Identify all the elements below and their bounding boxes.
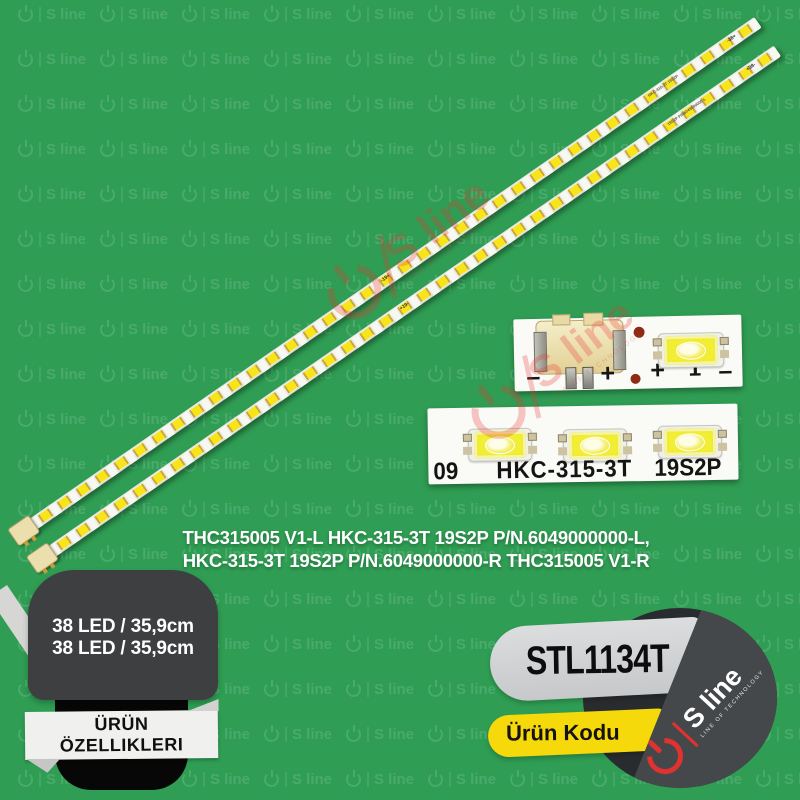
- watermark-tile: S line: [674, 501, 742, 518]
- power-icon: [428, 52, 443, 67]
- watermark-tile: S line: [100, 6, 168, 23]
- watermark-tile: S line: [18, 96, 86, 113]
- divider-bar: [449, 142, 451, 157]
- watermark-tile: S line: [674, 186, 742, 203]
- watermark-brand-text: S line: [784, 501, 800, 518]
- divider-bar: [121, 142, 123, 157]
- divider-bar: [39, 367, 41, 382]
- watermark-tile: S line: [264, 501, 332, 518]
- divider-bar: [39, 142, 41, 157]
- watermark-tile: S line: [756, 141, 800, 158]
- watermark-brand-text: S line: [456, 51, 496, 68]
- power-icon: [182, 232, 197, 247]
- features-ribbon: ÜRÜN ÖZELLIKLERI: [25, 710, 218, 760]
- watermark-tile: S line: [346, 771, 414, 788]
- watermark-brand-text: S line: [620, 186, 660, 203]
- watermark-brand-text: S line: [128, 96, 168, 113]
- watermark-brand-text: S line: [128, 51, 168, 68]
- divider-bar: [285, 97, 287, 112]
- divider-bar: [449, 97, 451, 112]
- power-icon: [346, 727, 361, 742]
- power-icon: [428, 367, 443, 382]
- divider-bar: [777, 187, 779, 202]
- power-icon: [428, 592, 443, 607]
- watermark-brand-text: S line: [46, 276, 86, 293]
- watermark-brand-text: S line: [374, 411, 414, 428]
- watermark-tile: S line: [100, 96, 168, 113]
- power-icon: [756, 97, 771, 112]
- watermark-brand-text: S line: [46, 51, 86, 68]
- divider-bar: [777, 142, 779, 157]
- divider-bar: [39, 772, 41, 787]
- ribbon-line-2: ÖZELLIKLERI: [25, 734, 218, 757]
- watermark-brand-text: S line: [292, 501, 332, 518]
- product-image: S lineS lineS lineS lineS lineS lineS li…: [0, 0, 800, 800]
- watermark-brand-text: S line: [784, 321, 800, 338]
- power-icon: [592, 187, 607, 202]
- watermark-brand-text: S line: [456, 321, 496, 338]
- watermark-tile: S line: [100, 276, 168, 293]
- power-icon: [264, 322, 279, 337]
- divider-bar: [285, 277, 287, 292]
- power-icon: [428, 637, 443, 652]
- divider-bar: [285, 52, 287, 67]
- watermark-tile: S line: [264, 411, 332, 428]
- watermark-brand-text: S line: [456, 681, 496, 698]
- watermark-tile: S line: [18, 231, 86, 248]
- power-icon: [510, 52, 525, 67]
- divider-bar: [285, 502, 287, 517]
- watermark-tile: S line: [346, 726, 414, 743]
- watermark-tile: S line: [428, 636, 496, 653]
- watermark-brand-text: S line: [538, 96, 578, 113]
- led-pad: [718, 430, 727, 438]
- watermark-tile: S line: [264, 231, 332, 248]
- divider-bar: [367, 772, 369, 787]
- power-icon: [346, 682, 361, 697]
- power-icon: [182, 97, 197, 112]
- watermark-tile: S line: [264, 456, 332, 473]
- watermark-brand-text: S line: [210, 501, 250, 518]
- watermark-brand-text: S line: [620, 591, 660, 608]
- watermark-brand-text: S line: [374, 186, 414, 203]
- watermark-tile: S line: [674, 6, 742, 23]
- power-icon: [756, 412, 771, 427]
- power-icon: [18, 277, 33, 292]
- watermark-tile: S line: [428, 51, 496, 68]
- watermark-brand-text: S line: [374, 96, 414, 113]
- watermark-tile: S line: [756, 501, 800, 518]
- watermark-brand-text: S line: [620, 501, 660, 518]
- watermark-tile: S line: [18, 366, 86, 383]
- power-icon: [674, 277, 689, 292]
- divider-bar: [203, 52, 205, 67]
- watermark-tile: S line: [510, 51, 578, 68]
- watermark-tile: S line: [182, 51, 250, 68]
- divider-bar: [285, 412, 287, 427]
- watermark-brand-text: S line: [702, 6, 742, 23]
- watermark-brand-text: S line: [210, 51, 250, 68]
- watermark-brand-text: S line: [292, 636, 332, 653]
- divider-bar: [613, 232, 615, 247]
- watermark-tile: S line: [346, 636, 414, 653]
- watermark-tile: S line: [100, 231, 168, 248]
- divider-bar: [367, 682, 369, 697]
- divider-bar: [367, 142, 369, 157]
- watermark-tile: S line: [428, 681, 496, 698]
- watermark-brand-text: S line: [702, 501, 742, 518]
- watermark-brand-text: S line: [292, 231, 332, 248]
- watermark-tile: S line: [182, 6, 250, 23]
- power-icon: [346, 97, 361, 112]
- solder-dot: [630, 374, 640, 384]
- power-icon: [428, 97, 443, 112]
- divider-bar: [777, 97, 779, 112]
- watermark-brand-text: S line: [374, 366, 414, 383]
- watermark-brand-text: S line: [784, 456, 800, 473]
- power-icon: [346, 187, 361, 202]
- divider-bar: [203, 187, 205, 202]
- divider-bar: [449, 637, 451, 652]
- divider-bar: [39, 457, 41, 472]
- watermark-tile: S line: [182, 141, 250, 158]
- power-icon: [592, 52, 607, 67]
- watermark-tile: S line: [18, 411, 86, 428]
- watermark-tile: S line: [18, 51, 86, 68]
- power-icon: [264, 232, 279, 247]
- power-icon: [428, 772, 443, 787]
- watermark-tile: S line: [674, 141, 742, 158]
- divider-bar: [121, 97, 123, 112]
- watermark-brand-text: S line: [784, 591, 800, 608]
- watermark-brand-text: S line: [784, 411, 800, 428]
- watermark-tile: S line: [100, 366, 168, 383]
- product-code-label-banner: Ürün Kodu: [487, 708, 669, 758]
- watermark-brand-text: S line: [210, 771, 250, 788]
- divider-bar: [449, 502, 451, 517]
- power-icon: [674, 502, 689, 517]
- watermark-brand-text: S line: [46, 321, 86, 338]
- watermark-brand-text: S line: [456, 591, 496, 608]
- watermark-brand-text: S line: [292, 96, 332, 113]
- divider-bar: [203, 367, 205, 382]
- divider-bar: [531, 142, 533, 157]
- watermark-brand-text: S line: [46, 141, 86, 158]
- divider-bar: [367, 7, 369, 22]
- divider-bar: [285, 682, 287, 697]
- divider-bar: [695, 232, 697, 247]
- power-icon: [264, 52, 279, 67]
- watermark-brand-text: S line: [210, 186, 250, 203]
- watermark-tile: S line: [264, 186, 332, 203]
- power-icon: [182, 772, 197, 787]
- watermark-brand-text: S line: [210, 231, 250, 248]
- watermark-brand-text: S line: [702, 276, 742, 293]
- power-icon: [756, 142, 771, 157]
- watermark-brand-text: S line: [128, 141, 168, 158]
- power-icon: [264, 97, 279, 112]
- watermark-brand-text: S line: [46, 231, 86, 248]
- watermark-brand-text: S line: [620, 51, 660, 68]
- power-icon: [100, 52, 115, 67]
- power-icon: [100, 412, 115, 427]
- power-icon: [428, 502, 443, 517]
- watermark-brand-text: S line: [374, 51, 414, 68]
- watermark-brand-text: S line: [292, 771, 332, 788]
- divider-bar: [777, 592, 779, 607]
- power-icon: [428, 682, 443, 697]
- watermark-brand-text: S line: [292, 186, 332, 203]
- watermark-tile: S line: [100, 321, 168, 338]
- power-icon: [756, 367, 771, 382]
- divider-bar: [203, 232, 205, 247]
- watermark-tile: S line: [18, 276, 86, 293]
- divider-bar: [203, 457, 205, 472]
- description-line-1: THC315005 V1-L HKC-315-3T 19S2P P/N.6049…: [16, 527, 800, 550]
- power-icon: [756, 7, 771, 22]
- power-icon: [18, 142, 33, 157]
- product-code: STL1134T: [526, 638, 670, 680]
- watermark-tile: S line: [182, 771, 250, 788]
- divider-bar: [695, 277, 697, 292]
- power-icon: [18, 97, 33, 112]
- divider-bar: [203, 142, 205, 157]
- divider-bar: [531, 277, 533, 292]
- watermark-tile: S line: [264, 6, 332, 23]
- power-icon: [264, 277, 279, 292]
- watermark-brand-text: S line: [702, 141, 742, 158]
- divider-bar: [613, 52, 615, 67]
- power-icon: [756, 772, 771, 787]
- watermark-brand-text: S line: [46, 186, 86, 203]
- divider-bar: [449, 682, 451, 697]
- power-icon: [428, 322, 443, 337]
- power-icon: [346, 7, 361, 22]
- divider-bar: [777, 727, 779, 742]
- pcb-print-model: HKC-315-3T: [496, 457, 632, 483]
- watermark-brand-text: S line: [128, 186, 168, 203]
- divider-bar: [613, 187, 615, 202]
- watermark-brand-text: S line: [538, 591, 578, 608]
- watermark-brand-text: S line: [128, 321, 168, 338]
- divider-bar: [367, 97, 369, 112]
- watermark-brand-text: S line: [784, 366, 800, 383]
- divider-bar: [777, 232, 779, 247]
- watermark-brand-text: S line: [456, 141, 496, 158]
- watermark-tile: S line: [346, 501, 414, 518]
- power-icon: [18, 367, 33, 382]
- divider-bar: [121, 322, 123, 337]
- power-icon: [18, 52, 33, 67]
- watermark-tile: S line: [756, 321, 800, 338]
- power-icon: [346, 52, 361, 67]
- watermark-brand-text: S line: [374, 6, 414, 23]
- power-icon: [756, 187, 771, 202]
- led-pad: [653, 431, 662, 439]
- power-icon: [182, 322, 197, 337]
- divider-bar: [695, 142, 697, 157]
- divider-bar: [613, 772, 615, 787]
- power-icon: [100, 97, 115, 112]
- power-icon: [674, 232, 689, 247]
- watermark-brand-text: S line: [538, 6, 578, 23]
- watermark-brand-text: S line: [292, 726, 332, 743]
- power-icon: [18, 457, 33, 472]
- divider-bar: [285, 7, 287, 22]
- feature-line-1: 38 LED / 35,9cm: [28, 616, 218, 638]
- watermark-brand-text: S line: [784, 231, 800, 248]
- divider-bar: [777, 367, 779, 382]
- divider-bar: [285, 142, 287, 157]
- divider-bar: [449, 52, 451, 67]
- watermark-tile: S line: [264, 591, 332, 608]
- watermark-brand-text: S line: [46, 456, 86, 473]
- watermark-tile: S line: [264, 636, 332, 653]
- pcb-print-date: 09: [433, 460, 458, 484]
- power-icon: [264, 772, 279, 787]
- watermark-tile: S line: [182, 321, 250, 338]
- divider-bar: [39, 52, 41, 67]
- watermark-brand-text: S line: [46, 411, 86, 428]
- power-icon: [100, 322, 115, 337]
- divider-bar: [285, 727, 287, 742]
- watermark-tile: S line: [756, 231, 800, 248]
- divider-bar: [203, 97, 205, 112]
- watermark-brand-text: S line: [784, 96, 800, 113]
- power-icon: [264, 7, 279, 22]
- watermark-tile: S line: [592, 231, 660, 248]
- power-icon: [100, 187, 115, 202]
- product-description: THC315005 V1-L HKC-315-3T 19S2P P/N.6049…: [16, 527, 800, 572]
- led-pad: [528, 433, 537, 441]
- divider-bar: [285, 637, 287, 652]
- watermark-tile: S line: [428, 321, 496, 338]
- watermark-brand-text: S line: [374, 681, 414, 698]
- power-icon: [100, 7, 115, 22]
- watermark-tile: S line: [346, 411, 414, 428]
- power-icon: [592, 772, 607, 787]
- led-pad: [558, 434, 567, 442]
- watermark-tile: S line: [346, 141, 414, 158]
- watermark-brand-text: S line: [292, 456, 332, 473]
- watermark-tile: S line: [264, 726, 332, 743]
- product-code-label: Ürün Kodu: [506, 721, 650, 744]
- divider-bar: [203, 322, 205, 337]
- watermark-tile: S line: [674, 276, 742, 293]
- power-icon: [428, 7, 443, 22]
- watermark-tile: S line: [182, 231, 250, 248]
- ribbon-line-1: ÜRÜN: [25, 713, 218, 736]
- watermark-brand-text: S line: [456, 6, 496, 23]
- power-icon: [264, 187, 279, 202]
- power-icon: [756, 502, 771, 517]
- power-icon: [346, 142, 361, 157]
- divider-bar: [285, 322, 287, 337]
- power-icon: [592, 97, 607, 112]
- divider-bar: [367, 412, 369, 427]
- watermark-tile: S line: [182, 96, 250, 113]
- power-icon: [756, 592, 771, 607]
- divider-bar: [531, 502, 533, 517]
- power-icon: [592, 7, 607, 22]
- power-icon: [592, 502, 607, 517]
- power-icon: [182, 187, 197, 202]
- power-icon: [346, 772, 361, 787]
- power-icon: [346, 457, 361, 472]
- watermark-tile: S line: [756, 6, 800, 23]
- watermark-tile: S line: [100, 186, 168, 203]
- divider-bar: [449, 322, 451, 337]
- watermark-brand-text: S line: [538, 231, 578, 248]
- divider-bar: [449, 367, 451, 382]
- watermark-brand-text: S line: [456, 501, 496, 518]
- watermark-brand-text: S line: [374, 726, 414, 743]
- power-icon: [756, 457, 771, 472]
- divider-bar: [203, 772, 205, 787]
- divider-bar: [367, 457, 369, 472]
- watermark-tile: S line: [346, 6, 414, 23]
- watermark-brand-text: S line: [210, 321, 250, 338]
- power-icon: [346, 232, 361, 247]
- divider-bar: [121, 277, 123, 292]
- watermark-tile: S line: [592, 591, 660, 608]
- power-icon: [510, 277, 525, 292]
- divider-bar: [531, 232, 533, 247]
- power-icon: [264, 682, 279, 697]
- divider-bar: [39, 322, 41, 337]
- watermark-tile: S line: [510, 501, 578, 518]
- power-icon: [346, 637, 361, 652]
- watermark-tile: S line: [100, 51, 168, 68]
- watermark-brand-text: S line: [374, 591, 414, 608]
- divider-bar: [367, 592, 369, 607]
- watermark-tile: S line: [756, 276, 800, 293]
- watermark-tile: S line: [18, 186, 86, 203]
- watermark-brand-text: S line: [702, 186, 742, 203]
- watermark-tile: S line: [264, 51, 332, 68]
- watermark-brand-text: S line: [784, 141, 800, 158]
- watermark-brand-text: S line: [210, 141, 250, 158]
- divider-bar: [613, 97, 615, 112]
- divider-bar: [531, 97, 533, 112]
- watermark-tile: S line: [428, 6, 496, 23]
- divider-bar: [777, 7, 779, 22]
- watermark-brand-text: S line: [374, 771, 414, 788]
- watermark-brand-text: S line: [210, 276, 250, 293]
- divider-bar: [531, 772, 533, 787]
- watermark-brand-text: S line: [702, 231, 742, 248]
- watermark-brand-text: S line: [784, 276, 800, 293]
- power-icon: [428, 727, 443, 742]
- watermark-brand-text: S line: [374, 141, 414, 158]
- power-icon: [18, 772, 33, 787]
- divider-bar: [695, 7, 697, 22]
- watermark-brand-text: S line: [128, 231, 168, 248]
- divider-bar: [777, 412, 779, 427]
- watermark-tile: S line: [346, 681, 414, 698]
- watermark-tile: S line: [264, 681, 332, 698]
- power-icon: [346, 412, 361, 427]
- watermark-tile: S line: [18, 321, 86, 338]
- watermark-tile: S line: [428, 771, 496, 788]
- divider-bar: [367, 727, 369, 742]
- watermark-tile: S line: [428, 591, 496, 608]
- power-icon: [182, 142, 197, 157]
- watermark-tile: S line: [346, 456, 414, 473]
- watermark-brand-text: S line: [620, 6, 660, 23]
- power-icon: [346, 367, 361, 382]
- watermark-tile: S line: [756, 771, 800, 788]
